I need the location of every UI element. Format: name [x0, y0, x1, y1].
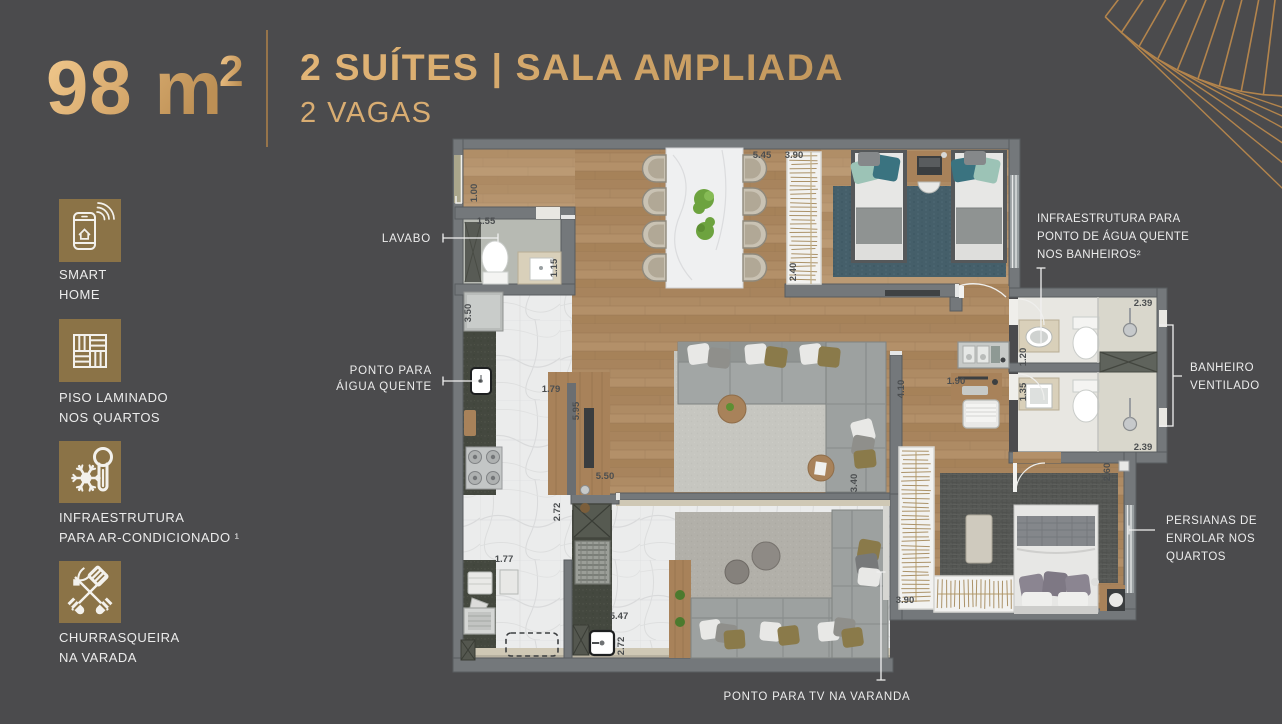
- svg-text:BANHEIRO: BANHEIRO: [1190, 362, 1254, 374]
- svg-text:1.35: 1.35: [1018, 382, 1029, 401]
- svg-text:INFRAESTRUTURA PARA: INFRAESTRUTURA PARA: [1037, 213, 1181, 225]
- svg-text:HOME: HOME: [59, 287, 100, 302]
- svg-text:1.00: 1.00: [469, 184, 480, 203]
- svg-text:PONTO PARA TV NA VARANDA: PONTO PARA TV NA VARANDA: [723, 691, 910, 703]
- svg-text:1.77: 1.77: [495, 554, 514, 565]
- svg-text:2.39: 2.39: [1134, 442, 1153, 453]
- svg-text:2: 2: [219, 47, 243, 96]
- svg-text:LAVABO: LAVABO: [382, 233, 431, 245]
- svg-text:2 SUÍTES | SALA AMPLIADA: 2 SUÍTES | SALA AMPLIADA: [300, 46, 844, 89]
- svg-text:VENTILADO: VENTILADO: [1190, 380, 1260, 392]
- svg-text:1.20: 1.20: [1018, 348, 1029, 367]
- svg-text:98 m: 98 m: [46, 46, 223, 131]
- svg-text:2.60: 2.60: [1102, 463, 1113, 482]
- svg-text:3.90: 3.90: [896, 595, 915, 606]
- svg-text:CHURRASQUEIRA: CHURRASQUEIRA: [59, 630, 180, 645]
- svg-text:5.45: 5.45: [753, 150, 772, 161]
- svg-text:PONTO DE ÁGUA QUENTE: PONTO DE ÁGUA QUENTE: [1037, 230, 1189, 243]
- svg-text:2.39: 2.39: [1134, 298, 1153, 309]
- svg-text:PISO LAMINADO: PISO LAMINADO: [59, 390, 168, 405]
- svg-text:2.40: 2.40: [788, 263, 799, 282]
- svg-text:PONTO PARA: PONTO PARA: [350, 365, 432, 377]
- svg-text:1.79: 1.79: [542, 384, 561, 395]
- svg-text:5.95: 5.95: [571, 401, 582, 420]
- svg-text:PARA AR-CONDICIONADO ¹: PARA AR-CONDICIONADO ¹: [59, 530, 240, 545]
- svg-text:QUARTOS: QUARTOS: [1166, 551, 1226, 563]
- svg-text:NOS BANHEIROS²: NOS BANHEIROS²: [1037, 249, 1141, 261]
- svg-text:5.47: 5.47: [610, 611, 629, 622]
- svg-text:3.40: 3.40: [849, 474, 860, 493]
- svg-text:2.72: 2.72: [616, 637, 627, 656]
- svg-text:ENROLAR NOS: ENROLAR NOS: [1166, 533, 1255, 545]
- svg-text:INFRAESTRUTURA: INFRAESTRUTURA: [59, 510, 184, 525]
- svg-text:2.72: 2.72: [552, 503, 563, 522]
- svg-text:4.10: 4.10: [896, 380, 907, 399]
- svg-text:3.50: 3.50: [463, 304, 474, 323]
- svg-text:1.90: 1.90: [947, 376, 966, 387]
- svg-text:2 VAGAS: 2 VAGAS: [300, 97, 432, 129]
- svg-text:1.15: 1.15: [549, 258, 560, 277]
- svg-text:5.50: 5.50: [596, 471, 615, 482]
- svg-text:SMART: SMART: [59, 267, 107, 282]
- svg-text:NA VARADA: NA VARADA: [59, 650, 137, 665]
- svg-text:3.90: 3.90: [785, 150, 804, 161]
- svg-text:NOS QUARTOS: NOS QUARTOS: [59, 410, 160, 425]
- svg-text:PERSIANAS DE: PERSIANAS DE: [1166, 515, 1257, 527]
- svg-text:ÁIGUA QUENTE: ÁIGUA QUENTE: [336, 380, 432, 393]
- svg-text:1.55: 1.55: [477, 216, 496, 227]
